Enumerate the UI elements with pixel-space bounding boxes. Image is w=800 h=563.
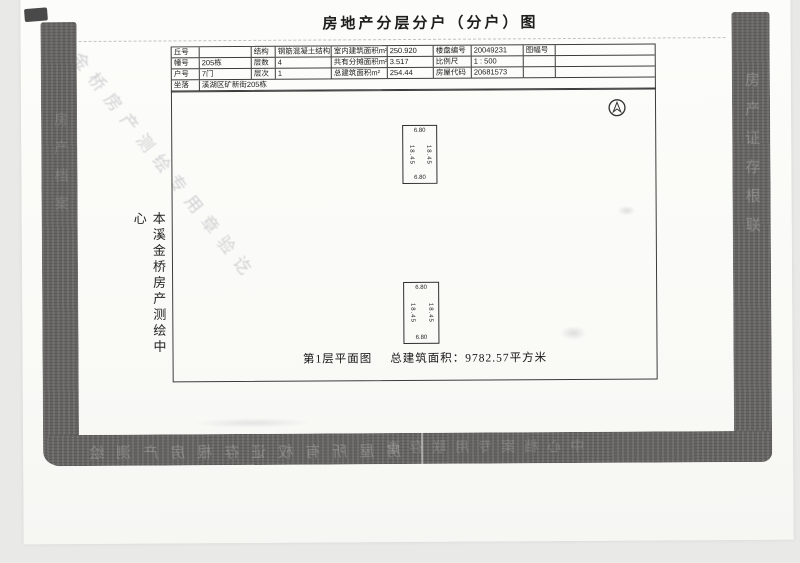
- scan-band-bottom: 房屋所有权证存根房产测绘 中心档案专用联存查: [47, 431, 772, 466]
- unit-outline: 6.80 18.45 18.45 6.80: [403, 282, 439, 344]
- table-cell-value: [556, 55, 655, 66]
- table-cell-label: 结构: [252, 47, 276, 57]
- table-cell-label: 层数: [252, 58, 276, 68]
- scan-band-right: 房产证存根联: [731, 12, 772, 462]
- table-cell-value: 20049231: [472, 45, 524, 55]
- bleedthrough-text: 房产证存根联: [741, 72, 763, 246]
- dimension-label: 18.45: [408, 144, 414, 164]
- table-cell-label: [524, 56, 556, 66]
- table-cell-value: 20681573: [472, 67, 524, 77]
- table-cell-value: 205栋: [200, 58, 252, 68]
- plan-caption: 第1层平面图总建筑面积：9782.57平方米: [194, 348, 657, 367]
- dimension-label: 6.80: [404, 285, 438, 291]
- scan-fold-line: [421, 429, 423, 469]
- scan-corner-mark: [24, 7, 48, 22]
- floor-plan-frame: 6.80 18.45 18.45 6.80 6.80 18.45 18.45 6…: [171, 87, 658, 382]
- dimension-label: 6.80: [404, 335, 438, 341]
- scan-band-left: 房产档案: [40, 22, 79, 465]
- dimension-label: 18.45: [409, 303, 415, 323]
- bleedthrough-text: 房产档案: [49, 112, 70, 224]
- table-cell-value: [200, 47, 252, 57]
- unit-outline: 6.80 18.45 18.45 6.80: [402, 125, 437, 184]
- table-cell-value: [556, 66, 655, 77]
- table-cell-value: 1 : 500: [472, 56, 524, 66]
- north-arrow-icon: [607, 98, 627, 118]
- scan-dashed-artifact: [54, 37, 726, 42]
- table-cell-value: 7门: [200, 69, 252, 79]
- table-cell-label: 户号: [172, 69, 200, 79]
- table-cell-label: 层次: [252, 69, 276, 79]
- table-cell-label: 幢号: [172, 58, 200, 68]
- scan-smudge: [193, 418, 313, 429]
- table-cell-value: 1: [276, 68, 332, 78]
- plan-caption-area: 总建筑面积：9782.57平方米: [390, 352, 547, 365]
- screenshot-stage: 金桥房产测绘专用章验讫 房产档案 房产证存根联 房屋所有权证存根房产测绘 中心档…: [0, 0, 800, 563]
- table-cell-value: 3.517: [388, 57, 434, 67]
- table-cell-value: [556, 44, 655, 55]
- table-cell-label: 共有分摊面积m²: [332, 57, 388, 67]
- dimension-label: 6.80: [403, 175, 436, 181]
- table-cell-value: 4: [276, 57, 332, 67]
- table-cell-label: 图幅号: [524, 45, 556, 55]
- table-cell-value: 钢筋混凝土结构: [276, 46, 332, 56]
- table-cell-label: 比例尺: [434, 57, 472, 67]
- table-cell-label: [524, 67, 556, 77]
- table-cell-label: 总建筑面积m²: [332, 68, 388, 78]
- dimension-label: 18.45: [427, 303, 433, 323]
- table-cell-label: 丘号: [172, 47, 200, 57]
- bleedthrough-text: 房屋所有权证存根房产测绘: [77, 440, 401, 463]
- bleedthrough-text: 中心档案专用联存查: [377, 436, 584, 457]
- table-cell-value: 254.44: [388, 68, 434, 78]
- scanned-paper: 金桥房产测绘专用章验讫 房产档案 房产证存根联 房屋所有权证存根房产测绘 中心档…: [20, 0, 793, 544]
- page-title: 房地产分层分户（分户）图: [170, 10, 690, 34]
- dimension-label: 18.45: [425, 144, 431, 164]
- plan-caption-title: 第1层平面图: [303, 353, 372, 365]
- table-cell-label: 楼盘编号: [434, 46, 472, 56]
- dimension-label: 6.80: [403, 128, 436, 134]
- table-cell-value: 250.920: [388, 46, 434, 56]
- table-cell-label: 室内建筑面积m²: [332, 46, 388, 56]
- surveying-agency-label: 本溪金桥房产测绘中心: [130, 211, 169, 361]
- property-info-table: 丘号 结构 钢筋混凝土结构 室内建筑面积m² 250.920 楼盘编号 2004…: [171, 43, 656, 92]
- table-cell-label: 房屋代码: [434, 68, 472, 78]
